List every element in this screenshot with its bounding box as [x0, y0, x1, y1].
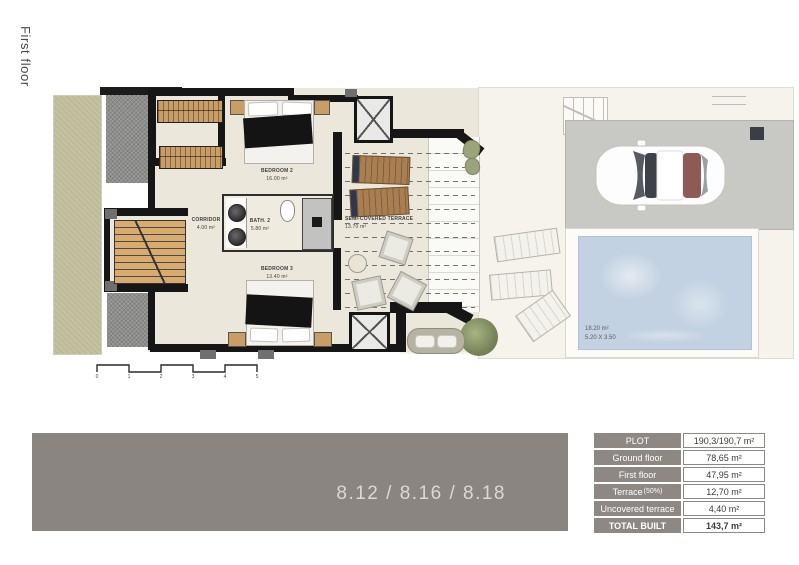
floor-plan-page: First floor	[0, 0, 799, 565]
room-name: BEDROOM 2	[261, 168, 293, 174]
room-label-bath2: BATH. 2 5.80 m²	[238, 218, 282, 233]
pool-label: 18.20 m² 5.20 X 3.50	[585, 325, 616, 343]
scale-tick-label: 3	[188, 374, 198, 380]
staircase	[114, 220, 186, 284]
nightstand	[314, 332, 332, 347]
scale-tick-label: 5	[252, 374, 262, 380]
table-row-total: TOTAL BUILT 143,7 m²	[594, 518, 765, 533]
gate-post	[750, 127, 764, 140]
scale-tick-label: 4	[220, 374, 230, 380]
room-name: CORRIDOR	[192, 217, 221, 223]
wall	[333, 248, 341, 310]
room-area: 13.40 m²	[247, 274, 307, 282]
room-name: BEDROOM 3	[261, 266, 293, 272]
nightstand	[314, 100, 330, 115]
wardrobe	[157, 100, 223, 123]
room-area: 13.70 m²	[345, 224, 417, 232]
bed-blanket	[245, 294, 312, 327]
row-value: 78,65 m²	[683, 450, 765, 465]
row-value: 12,70 m²	[683, 484, 765, 499]
pillar-block	[258, 350, 274, 359]
room-area: 5.80 m²	[238, 226, 282, 234]
pillar-block	[105, 209, 117, 219]
room-label-corridor: CORRIDOR 4.00 m²	[184, 217, 228, 232]
terrace-lounger	[349, 186, 409, 217]
terrace-lounger	[352, 155, 411, 185]
armchair	[351, 275, 387, 311]
room-area: 4.00 m²	[184, 225, 228, 233]
pool-dimensions: 5.20 X 3.50	[585, 335, 616, 341]
nightstand	[228, 332, 246, 347]
step-lines	[712, 96, 746, 105]
shaft-box	[354, 96, 393, 143]
wall	[386, 129, 464, 138]
room-name: SEMI-COVERED TERRACE	[345, 216, 413, 222]
bench-cushion	[437, 335, 457, 348]
wall	[333, 132, 342, 220]
pillar-block	[345, 89, 357, 97]
car-top-view	[593, 138, 728, 213]
scale-tick-label: 2	[156, 374, 166, 380]
wall	[148, 88, 294, 96]
room-label-bedroom2: BEDROOM 2 16.00 m²	[247, 168, 307, 183]
row-value: 4,40 m²	[683, 501, 765, 516]
row-label: TOTAL BUILT	[594, 518, 681, 533]
row-label: Terrace (50%)	[594, 484, 681, 499]
swimming-pool: 18.20 m² 5.20 X 3.50	[578, 236, 752, 350]
row-value: 47,95 m²	[683, 467, 765, 482]
shaft-box	[349, 312, 390, 352]
toilet	[280, 200, 295, 222]
table-row: First floor 47,95 m²	[594, 467, 765, 482]
table-row: PLOT 190,3/190,7 m²	[594, 433, 765, 448]
scale-tick-labels: 0 1 2 3 4 5	[95, 374, 261, 382]
shower	[302, 198, 332, 250]
outdoor-bench	[407, 328, 465, 354]
room-name: BATH. 2	[250, 218, 270, 224]
room-label-bedroom3: BEDROOM 3 13.40 m²	[247, 266, 307, 281]
bench-cushion	[415, 335, 435, 348]
table-row: Terrace (50%) 12,70 m²	[594, 484, 765, 499]
row-label: PLOT	[594, 433, 681, 448]
scale-bar	[95, 360, 261, 374]
table-row: Uncovered terrace 4,40 m²	[594, 501, 765, 516]
wall	[148, 160, 155, 212]
scale-tick-label: 1	[124, 374, 134, 380]
wall	[396, 310, 406, 352]
row-label-suffix: (50%)	[644, 488, 663, 495]
pool-deck: 18.20 m² 5.20 X 3.50	[565, 228, 759, 358]
garden-strip	[53, 95, 102, 355]
unit-numbers-banner: 8.12 / 8.16 / 8.18	[32, 433, 568, 531]
row-label: First floor	[594, 467, 681, 482]
unit-numbers: 8.12 / 8.16 / 8.18	[336, 483, 506, 505]
pillow	[248, 101, 278, 116]
coffee-table	[348, 254, 367, 273]
wall	[148, 88, 156, 162]
row-label: Ground floor	[594, 450, 681, 465]
page-title: First floor	[18, 26, 33, 87]
bed-blanket	[243, 114, 313, 149]
wall	[148, 290, 155, 350]
room-label-terrace: SEMI-COVERED TERRACE 13.70 m²	[345, 216, 417, 231]
shower-head	[312, 217, 322, 227]
room-area: 16.00 m²	[247, 176, 307, 184]
plant	[460, 318, 498, 356]
row-value: 190,3/190,7 m²	[683, 433, 765, 448]
scale-tick-label: 0	[92, 374, 102, 380]
wall	[104, 208, 110, 292]
row-label-text: Terrace	[613, 487, 643, 497]
area-summary-table: PLOT 190,3/190,7 m² Ground floor 78,65 m…	[594, 433, 765, 533]
wardrobe	[159, 146, 223, 169]
pillow	[250, 328, 278, 343]
pillow	[282, 328, 310, 343]
table-row: Ground floor 78,65 m²	[594, 450, 765, 465]
row-value: 143,7 m²	[683, 518, 765, 533]
row-label: Uncovered terrace	[594, 501, 681, 516]
pillar-block	[200, 350, 216, 359]
pool-area: 18.20 m²	[585, 326, 609, 332]
